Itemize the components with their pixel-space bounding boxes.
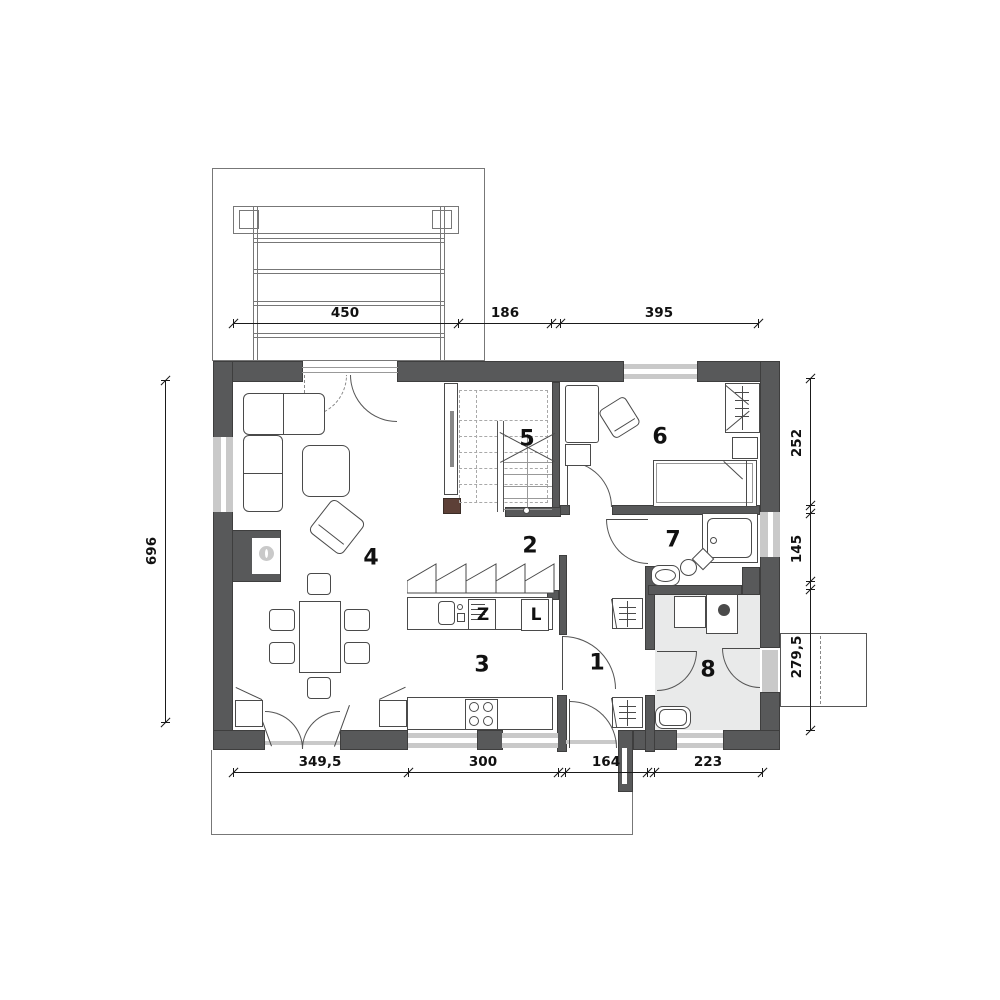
dining-chair [344, 642, 370, 664]
dim-label-279-5: 279,5 [789, 636, 805, 679]
room-number-6: 6 [652, 425, 667, 450]
desk-chair [598, 395, 642, 439]
dim-label-223: 223 [694, 754, 722, 770]
room-number-8: 8 [700, 658, 715, 683]
terrace-outline-bottom-left [211, 750, 212, 835]
room-number-4: 4 [363, 546, 378, 571]
dining-chair [344, 609, 370, 631]
terrace-outline-bottom [211, 834, 633, 835]
exterior-wall-bottom [477, 730, 503, 750]
boiler-knob [718, 604, 730, 616]
dim-label-696: 696 [144, 537, 160, 565]
room-number-2: 2 [522, 534, 537, 559]
exterior-wall-right [760, 361, 780, 513]
shower-drain [710, 537, 717, 544]
utility-counter [674, 596, 706, 628]
exterior-wall-bottom [213, 730, 265, 750]
stair-step [504, 474, 552, 475]
dim-label-300: 300 [469, 754, 497, 770]
window-bathroom-right [760, 512, 780, 557]
exterior-wall-left [213, 511, 233, 750]
dim-label-186: 186 [491, 305, 519, 321]
pergola-beam [253, 269, 445, 274]
stair-step [504, 498, 552, 499]
dining-chair [307, 677, 331, 699]
stair-step [504, 462, 552, 463]
window-entry-bottom [502, 733, 558, 748]
window-utility-bottom [677, 733, 723, 748]
dining-table [299, 601, 341, 673]
kitchen-upper-cabinets [407, 560, 555, 596]
dim-label-395: 395 [645, 305, 673, 321]
exterior-wall-bottom [633, 730, 677, 750]
platform-dashed-line [820, 636, 821, 704]
dining-chair [269, 642, 295, 664]
dim-label-252: 252 [789, 429, 805, 457]
window-living-left [213, 437, 233, 512]
exterior-wall-top [397, 361, 624, 382]
interior-wall-hall [645, 695, 655, 752]
exterior-wall-right [760, 556, 780, 648]
interior-wall-block [742, 567, 760, 595]
desk [565, 385, 599, 443]
floor-plan-canvas: Z L 1 2 3 4 5 6 7 8 450 186 395 [0, 0, 1000, 1000]
dining-chair [307, 573, 331, 595]
nightstand [732, 437, 758, 459]
dishwasher-label: Z [477, 605, 489, 625]
room-number-5: 5 [519, 427, 534, 452]
coffee-table [302, 445, 350, 497]
desk-drawer [565, 444, 591, 466]
room-number-3: 3 [474, 653, 489, 678]
fridge-label: L [531, 605, 542, 625]
interior-wall-stairs [552, 382, 560, 517]
stair-step [504, 486, 552, 487]
dim-label-145: 145 [789, 535, 805, 563]
exterior-wall-bottom [340, 730, 408, 750]
room-number-1: 1 [589, 651, 604, 676]
interior-wall-kitchen [559, 555, 567, 635]
window-bedroom-top [624, 364, 697, 379]
dim-label-164: 164 [592, 754, 620, 770]
dim-label-349-5: 349,5 [299, 754, 342, 770]
armchair [308, 498, 367, 557]
terrace-outline-bottom-right [632, 792, 633, 835]
window-kitchen-bottom [408, 733, 477, 748]
exterior-wall-left [213, 361, 233, 438]
dining-chair [269, 609, 295, 631]
dim-label-450: 450 [331, 305, 359, 321]
entry-wall-wing-slot [622, 748, 627, 784]
exterior-wall-bottom [723, 730, 780, 750]
pergola-beam [253, 238, 445, 243]
pergola-beam [253, 333, 445, 338]
room-number-7: 7 [665, 528, 680, 553]
